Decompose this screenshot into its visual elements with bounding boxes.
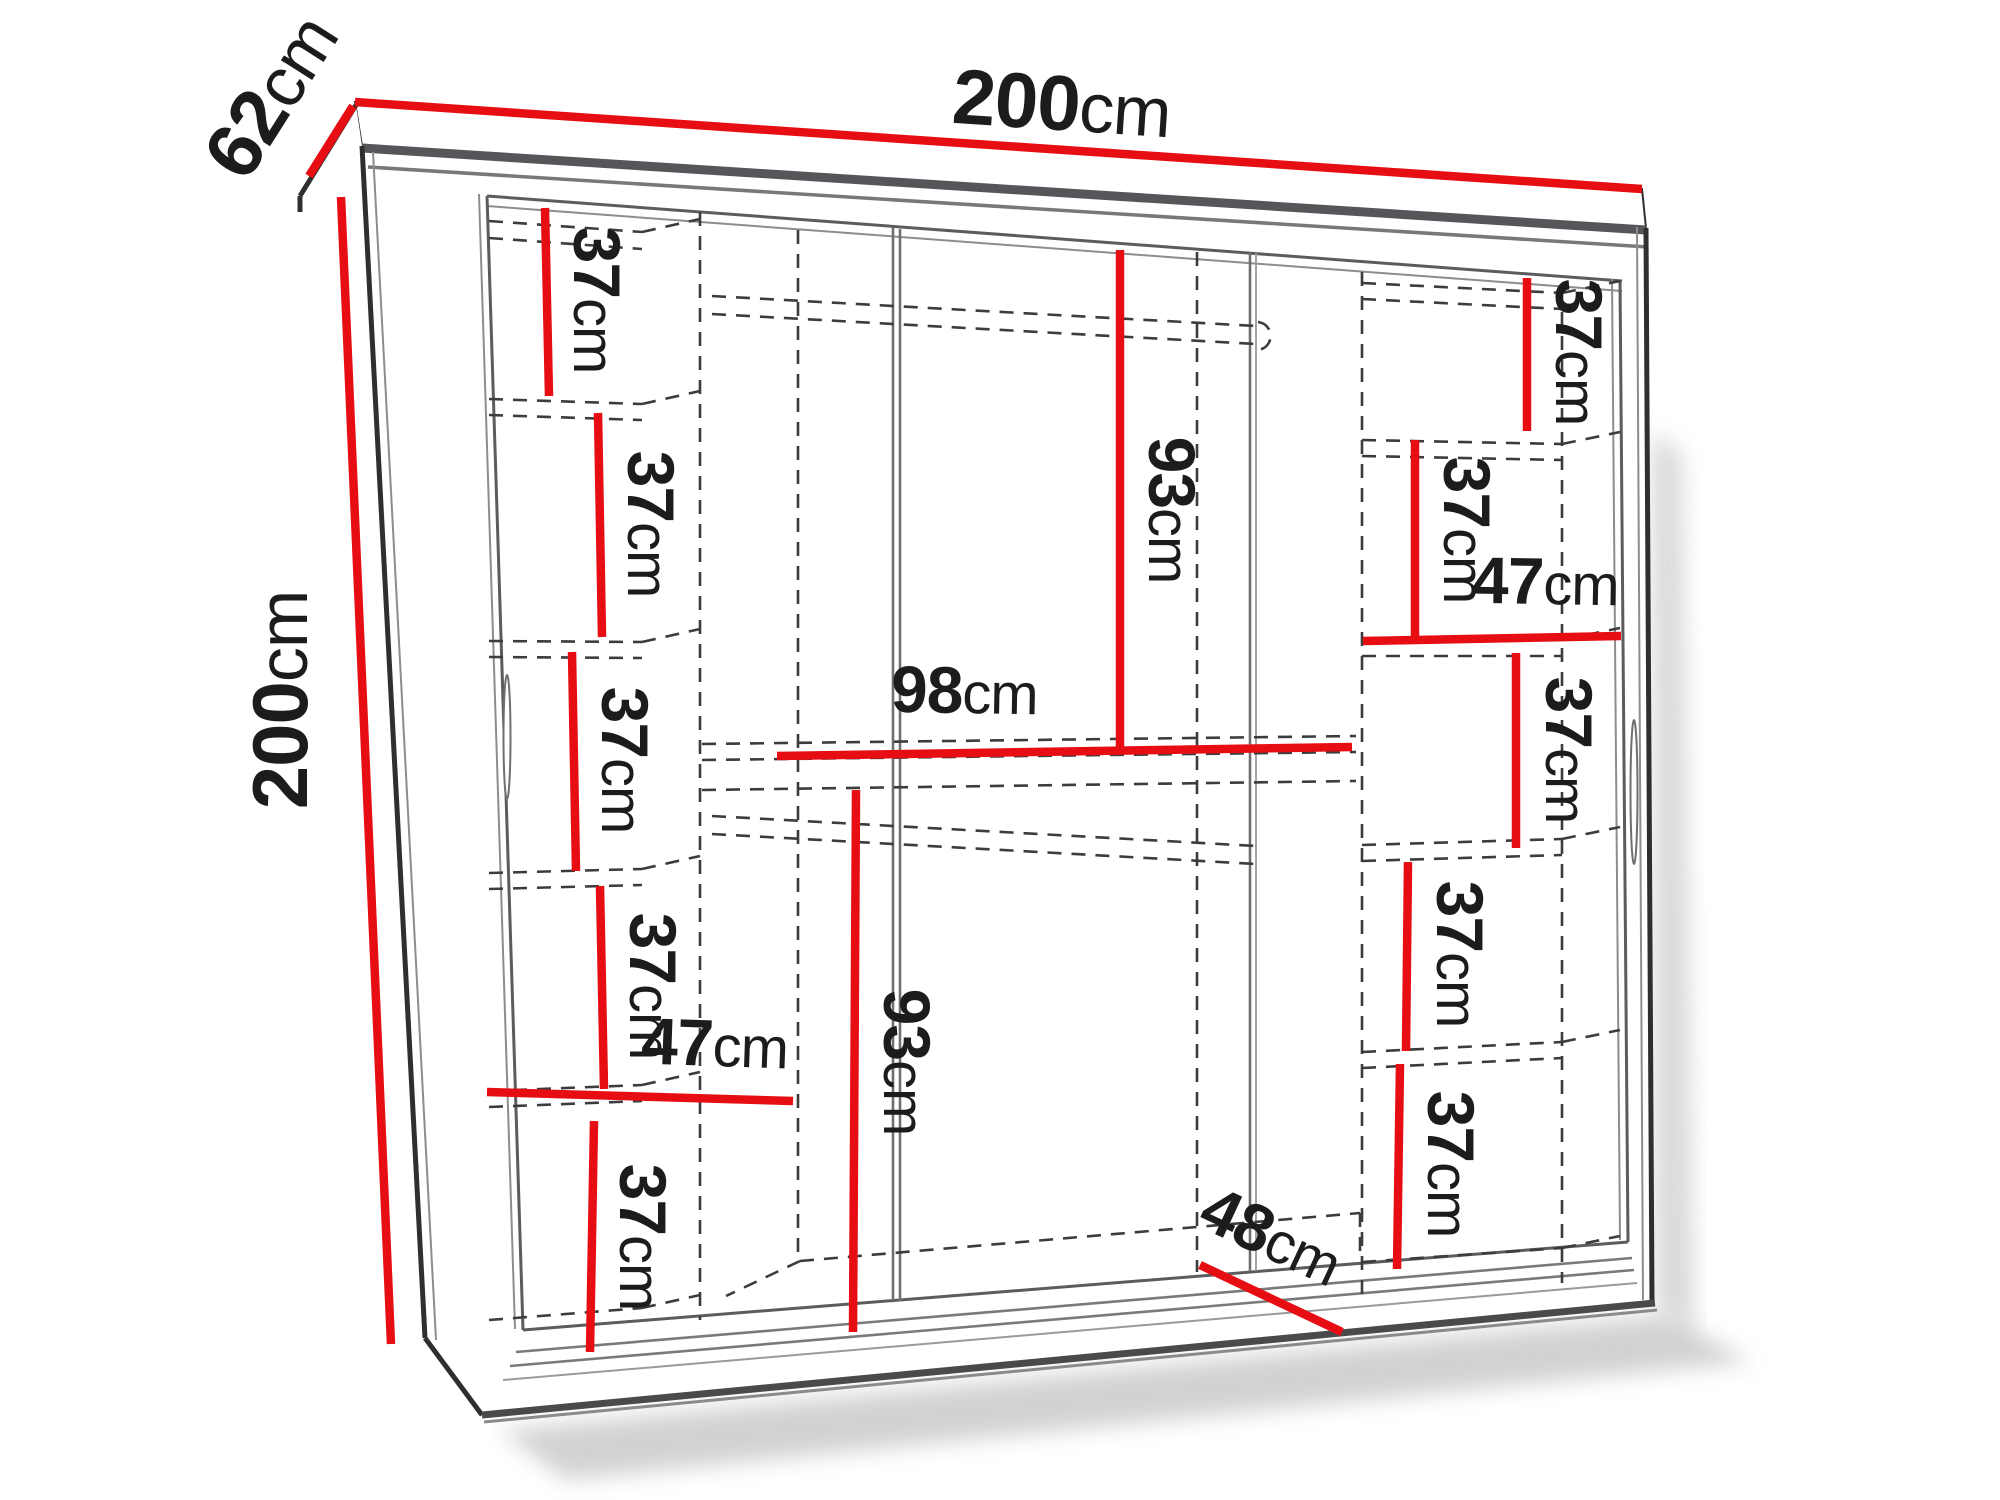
dim-line-right-shelf-4 xyxy=(1406,862,1408,1051)
mid-width-label: 98cm xyxy=(890,652,1038,729)
dim-line-left-shelf-3 xyxy=(572,652,576,871)
dim-line-left-shelf-1 xyxy=(545,208,549,396)
left-shelf-3-label: 37cm xyxy=(588,687,662,834)
wardrobe-dimension-diagram: 200cm 62cm 200cm 37cm 37cm 37cm 37cm 47c… xyxy=(0,0,2000,1500)
diagram-canvas: 200cm 62cm 200cm 37cm 37cm 37cm 37cm 47c… xyxy=(0,0,2000,1500)
left-shelf-5-label: 37cm xyxy=(606,1164,680,1311)
mid-lower-height-label: 93cm xyxy=(870,989,944,1136)
left-door-handle xyxy=(504,675,511,799)
right-shelf-4-label: 37cm xyxy=(1423,881,1497,1028)
left-width-label: 47cm xyxy=(640,1003,789,1082)
left-shelf-2-label: 37cm xyxy=(614,451,688,598)
overall-width-label: 200cm xyxy=(950,52,1174,154)
right-door-handle xyxy=(1631,720,1638,864)
dim-line-left-shelf-4 xyxy=(600,886,604,1089)
right-shelf-3-label: 37cm xyxy=(1532,677,1606,824)
right-width-label: 47cm xyxy=(1471,543,1619,620)
overall-height-label: 200cm xyxy=(236,591,324,809)
dim-line-mid-lower-height xyxy=(853,790,856,1332)
left-shelf-1-label: 37cm xyxy=(560,227,634,374)
dim-line-right-width xyxy=(1363,636,1621,641)
dim-line-right-shelf-5 xyxy=(1397,1064,1400,1269)
dim-line-left-shelf-5 xyxy=(590,1121,594,1352)
dim-line-left-shelf-2 xyxy=(598,413,602,637)
right-shelf-1-label: 37cm xyxy=(1542,279,1616,426)
right-shelf-5-label: 37cm xyxy=(1414,1091,1488,1238)
mid-upper-height-label: 93cm xyxy=(1135,437,1209,584)
